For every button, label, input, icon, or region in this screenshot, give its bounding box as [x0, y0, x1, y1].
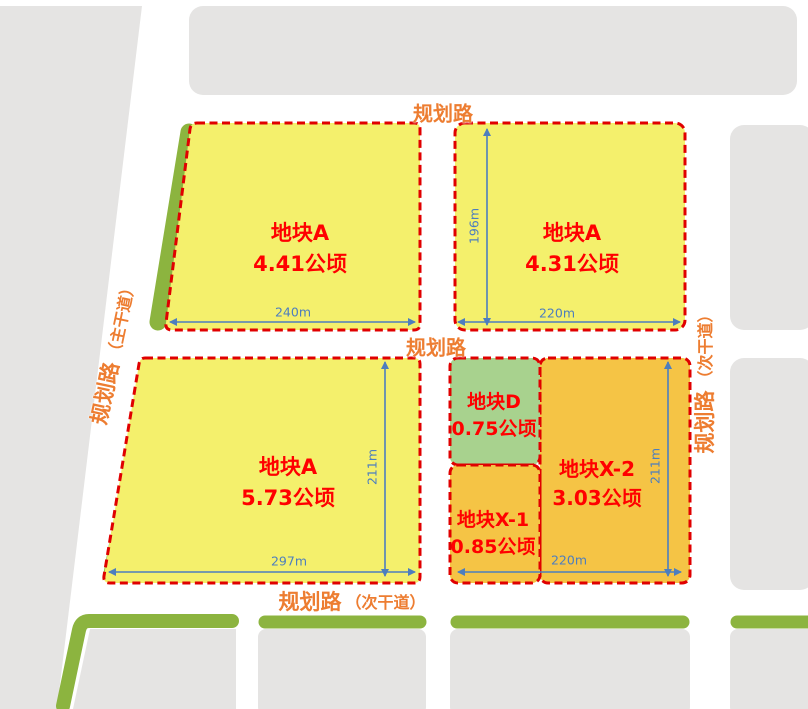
- parcel-a3-name: 地块A: [241, 452, 335, 483]
- dim-x2-height: 211m: [648, 448, 663, 484]
- parcel-a2-area: 4.31公顷: [525, 249, 619, 280]
- road-label-middle: 规划路: [406, 332, 466, 361]
- dim-a3-height: 211m: [365, 449, 380, 485]
- parcel-x2-area: 3.03公顷: [552, 484, 641, 513]
- parcel-a2-label: 地块A 4.31公顷: [525, 218, 619, 280]
- road-label-bottom: 规划路 （次干道）: [278, 586, 425, 616]
- parcel-x1-area: 0.85公顷: [451, 534, 536, 561]
- block-south-1: [73, 629, 236, 709]
- block-east-1: [730, 125, 808, 330]
- dim-a1-width: 240m: [275, 305, 311, 320]
- road-label-right-name: 规划路: [689, 391, 719, 454]
- block-north: [189, 6, 797, 95]
- parcel-a3-label: 地块A 5.73公顷: [241, 452, 335, 514]
- road-label-top: 规划路: [413, 98, 473, 127]
- parcel-x2-name: 地块X-2: [552, 455, 641, 484]
- dim-a2-width: 220m: [539, 306, 575, 321]
- block-south-4: [730, 629, 808, 709]
- parcel-a2-name: 地块A: [525, 218, 619, 249]
- land-use-plan: 地块A 4.41公顷 地块A 4.31公顷 地块A 5.73公顷 地块D 0.7…: [0, 0, 808, 709]
- parcel-x1-name: 地块X-1: [451, 507, 536, 534]
- parcel-x2-label: 地块X-2 3.03公顷: [552, 455, 641, 513]
- block-south-3: [450, 629, 690, 709]
- road-label-bottom-name: 规划路: [278, 586, 341, 616]
- parcel-a3-area: 5.73公顷: [241, 483, 335, 514]
- parcel-d-label: 地块D 0.75公顷: [452, 389, 537, 443]
- dim-a2-height: 196m: [467, 208, 482, 244]
- road-label-right-type: （次干道）: [692, 306, 716, 386]
- road-label-right: 规划路 （次干道）: [689, 306, 719, 453]
- dim-x-width: 220m: [551, 553, 587, 568]
- parcel-x1-label: 地块X-1 0.85公顷: [451, 507, 536, 561]
- parcel-d-name: 地块D: [452, 389, 537, 416]
- parcel-a1-label: 地块A 4.41公顷: [253, 218, 347, 280]
- block-east-2: [730, 358, 808, 590]
- dim-a3-width: 297m: [271, 554, 307, 569]
- parcel-a1-area: 4.41公顷: [253, 249, 347, 280]
- road-label-bottom-type: （次干道）: [345, 589, 425, 613]
- parcel-a1-name: 地块A: [253, 218, 347, 249]
- block-south-2: [258, 629, 426, 709]
- parcel-d-area: 0.75公顷: [452, 416, 537, 443]
